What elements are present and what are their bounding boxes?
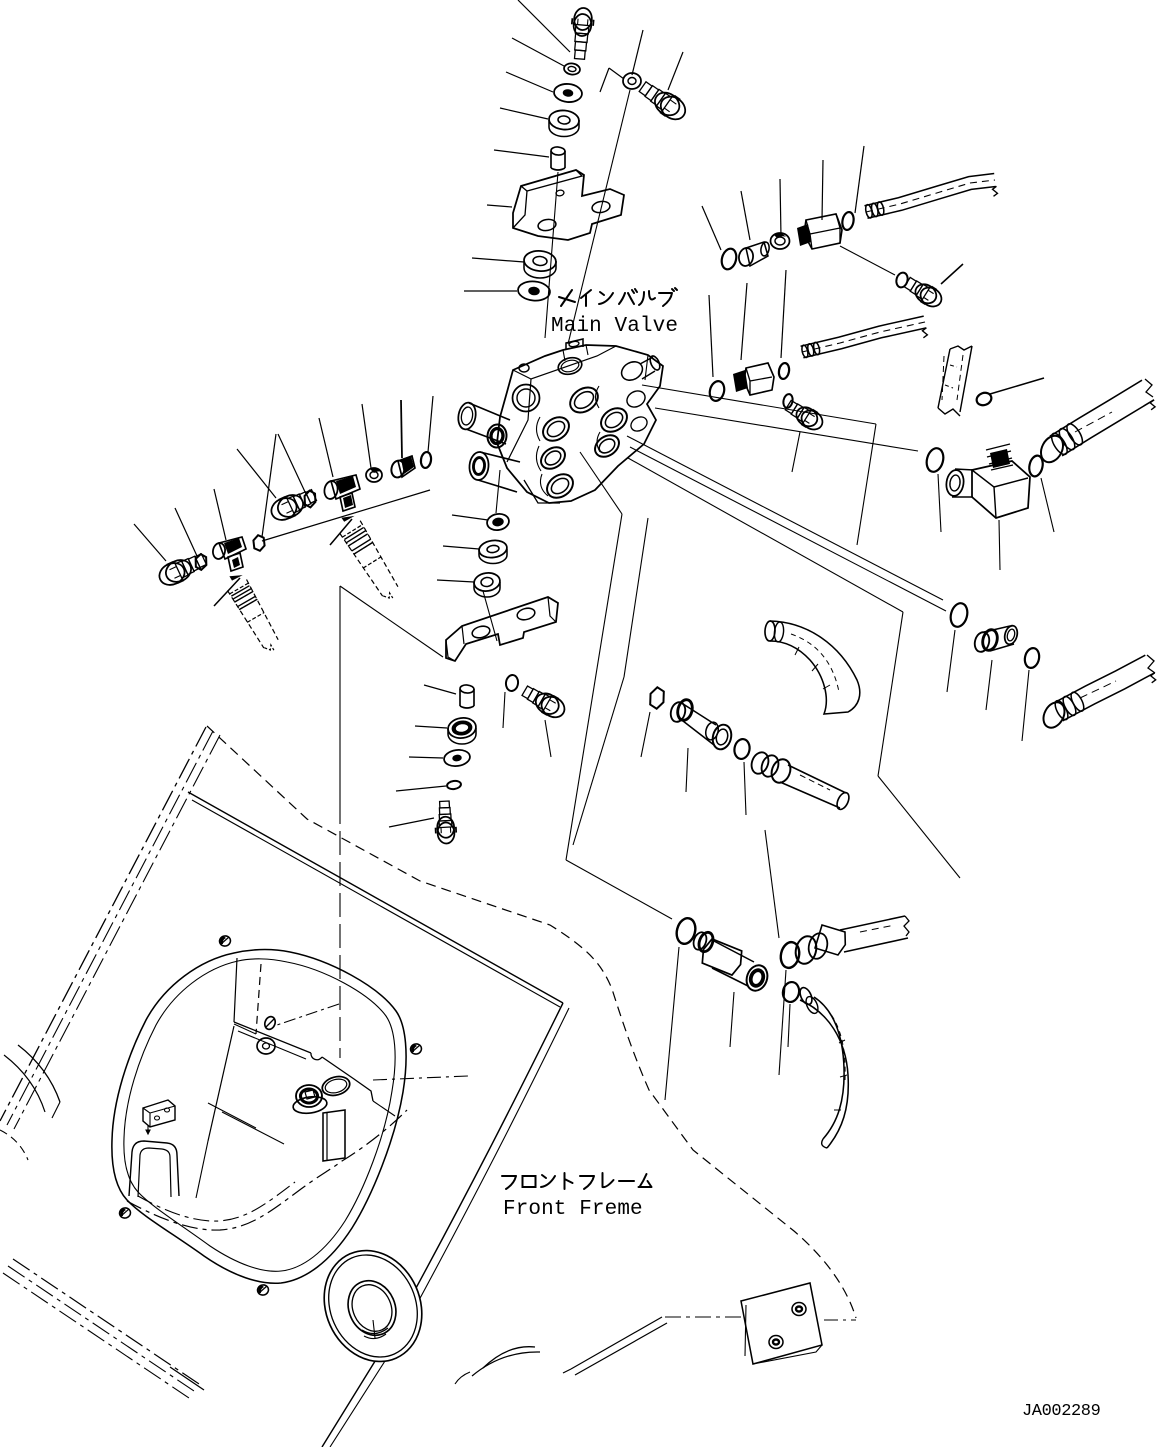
svg-text:JA002289: JA002289 [1022,1402,1101,1421]
svg-text:Main Valve: Main Valve [551,315,678,338]
svg-text:Front Freme: Front Freme [503,1198,643,1221]
